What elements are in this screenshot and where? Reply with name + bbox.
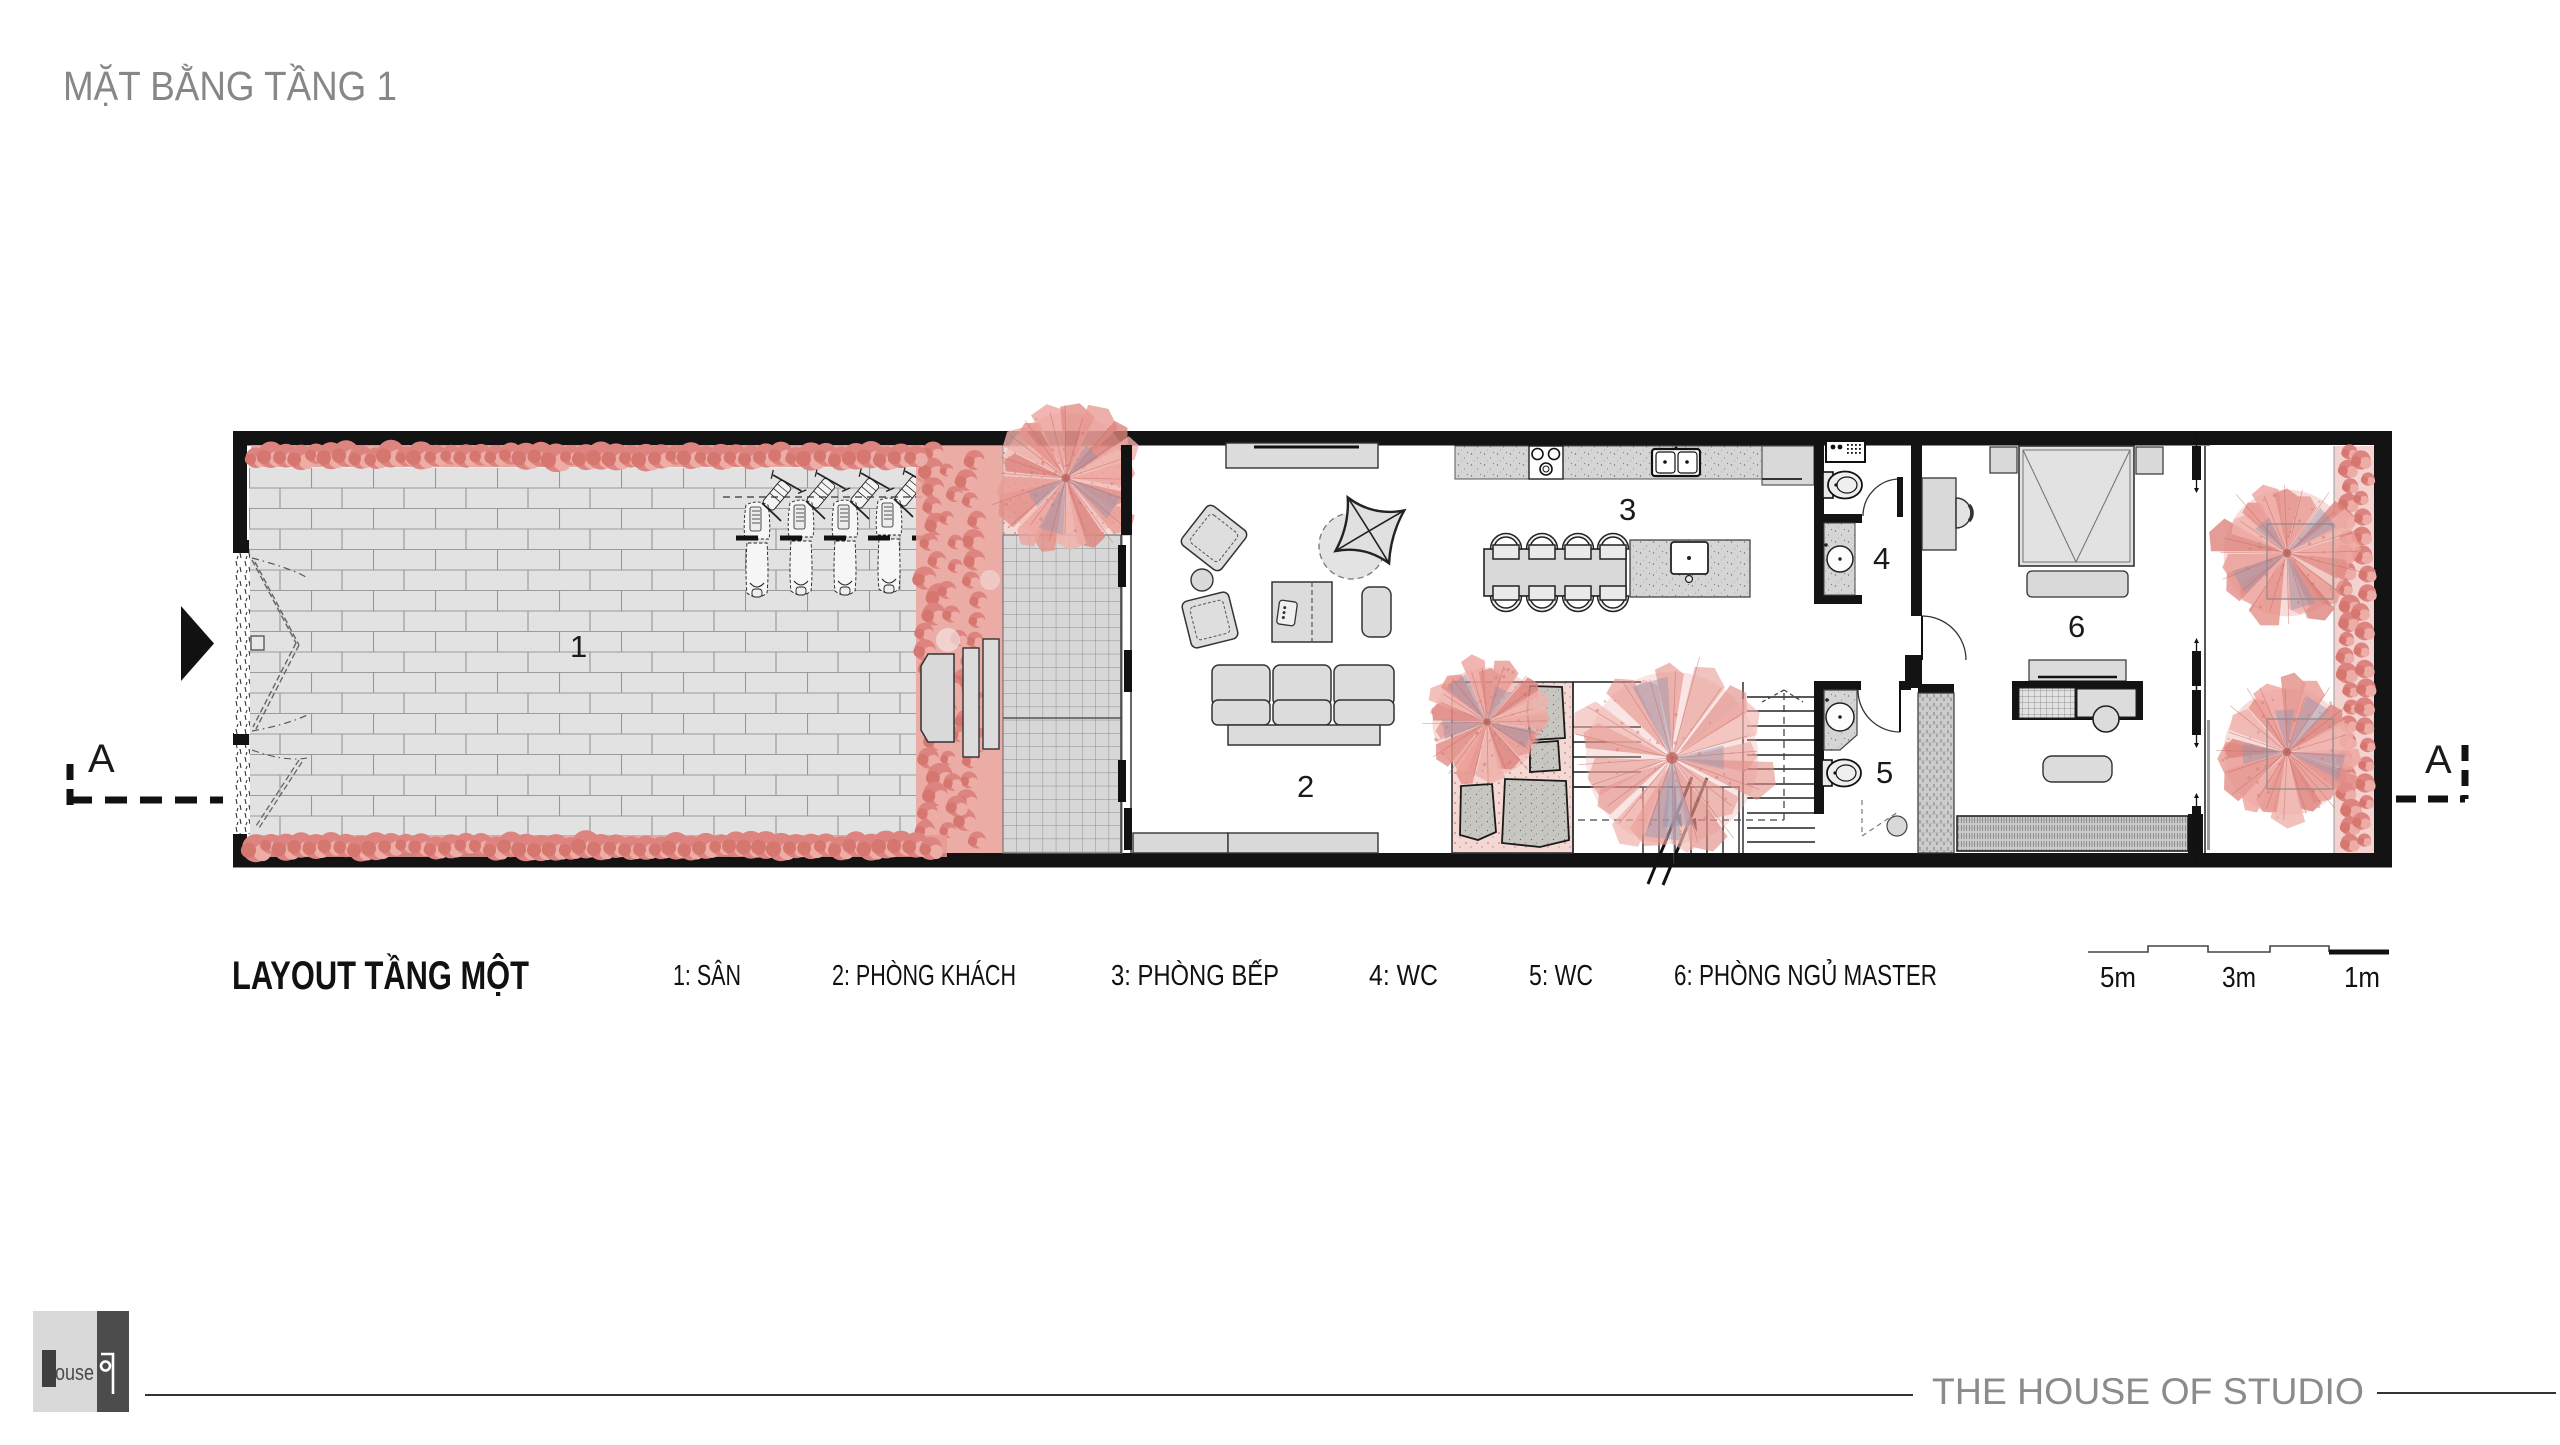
svg-text:2: PHÒNG KHÁCH: 2: PHÒNG KHÁCH [832,959,1016,992]
svg-text:6: 6 [2068,609,2085,644]
svg-text:MẶT BẰNG TẦNG 1: MẶT BẰNG TẦNG 1 [63,63,397,109]
svg-text:6: PHÒNG NGỦ MASTER: 6: PHÒNG NGỦ MASTER [1674,958,1937,992]
svg-text:1: 1 [570,629,587,664]
svg-text:ouse: ouse [55,1360,94,1385]
svg-text:5m: 5m [2100,962,2136,994]
svg-text:3: PHÒNG BẾP: 3: PHÒNG BẾP [1111,958,1279,992]
svg-text:A: A [88,737,115,781]
svg-text:4: 4 [1873,541,1890,576]
svg-text:4: WC: 4: WC [1369,960,1438,992]
svg-text:3: 3 [1619,492,1636,527]
svg-text:1m: 1m [2344,962,2380,994]
svg-text:THE HOUSE OF STUDIO: THE HOUSE OF STUDIO [1932,1371,2364,1412]
svg-text:5: WC: 5: WC [1529,960,1593,992]
svg-text:5: 5 [1876,755,1893,790]
svg-text:3m: 3m [2222,962,2256,994]
svg-text:A: A [2425,738,2452,782]
svg-text:1: SÂN: 1: SÂN [673,959,741,992]
svg-text:LAYOUT TẦNG MỘT: LAYOUT TẦNG MỘT [232,952,529,998]
svg-text:2: 2 [1297,769,1314,804]
